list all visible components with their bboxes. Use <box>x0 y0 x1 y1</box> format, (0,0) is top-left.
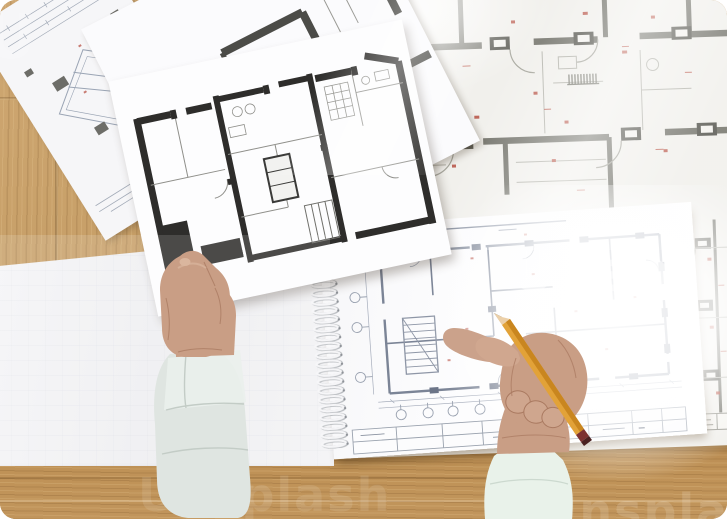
photo-architect-desk: U Unspl Unsplash Unsplash <box>0 0 727 519</box>
table-edge-highlight <box>0 500 727 502</box>
left-hand-and-arm <box>118 228 268 519</box>
kitchen-island <box>264 154 299 202</box>
left-cuff-fold <box>164 350 246 410</box>
right-hand-and-pencil <box>398 288 613 519</box>
left-arm-drawing <box>118 228 268 519</box>
right-arm-drawing <box>398 288 613 519</box>
left-hand <box>160 251 230 357</box>
screenshot: U Unspl Unsplash Unsplash <box>0 0 727 519</box>
plan-title <box>446 221 566 234</box>
